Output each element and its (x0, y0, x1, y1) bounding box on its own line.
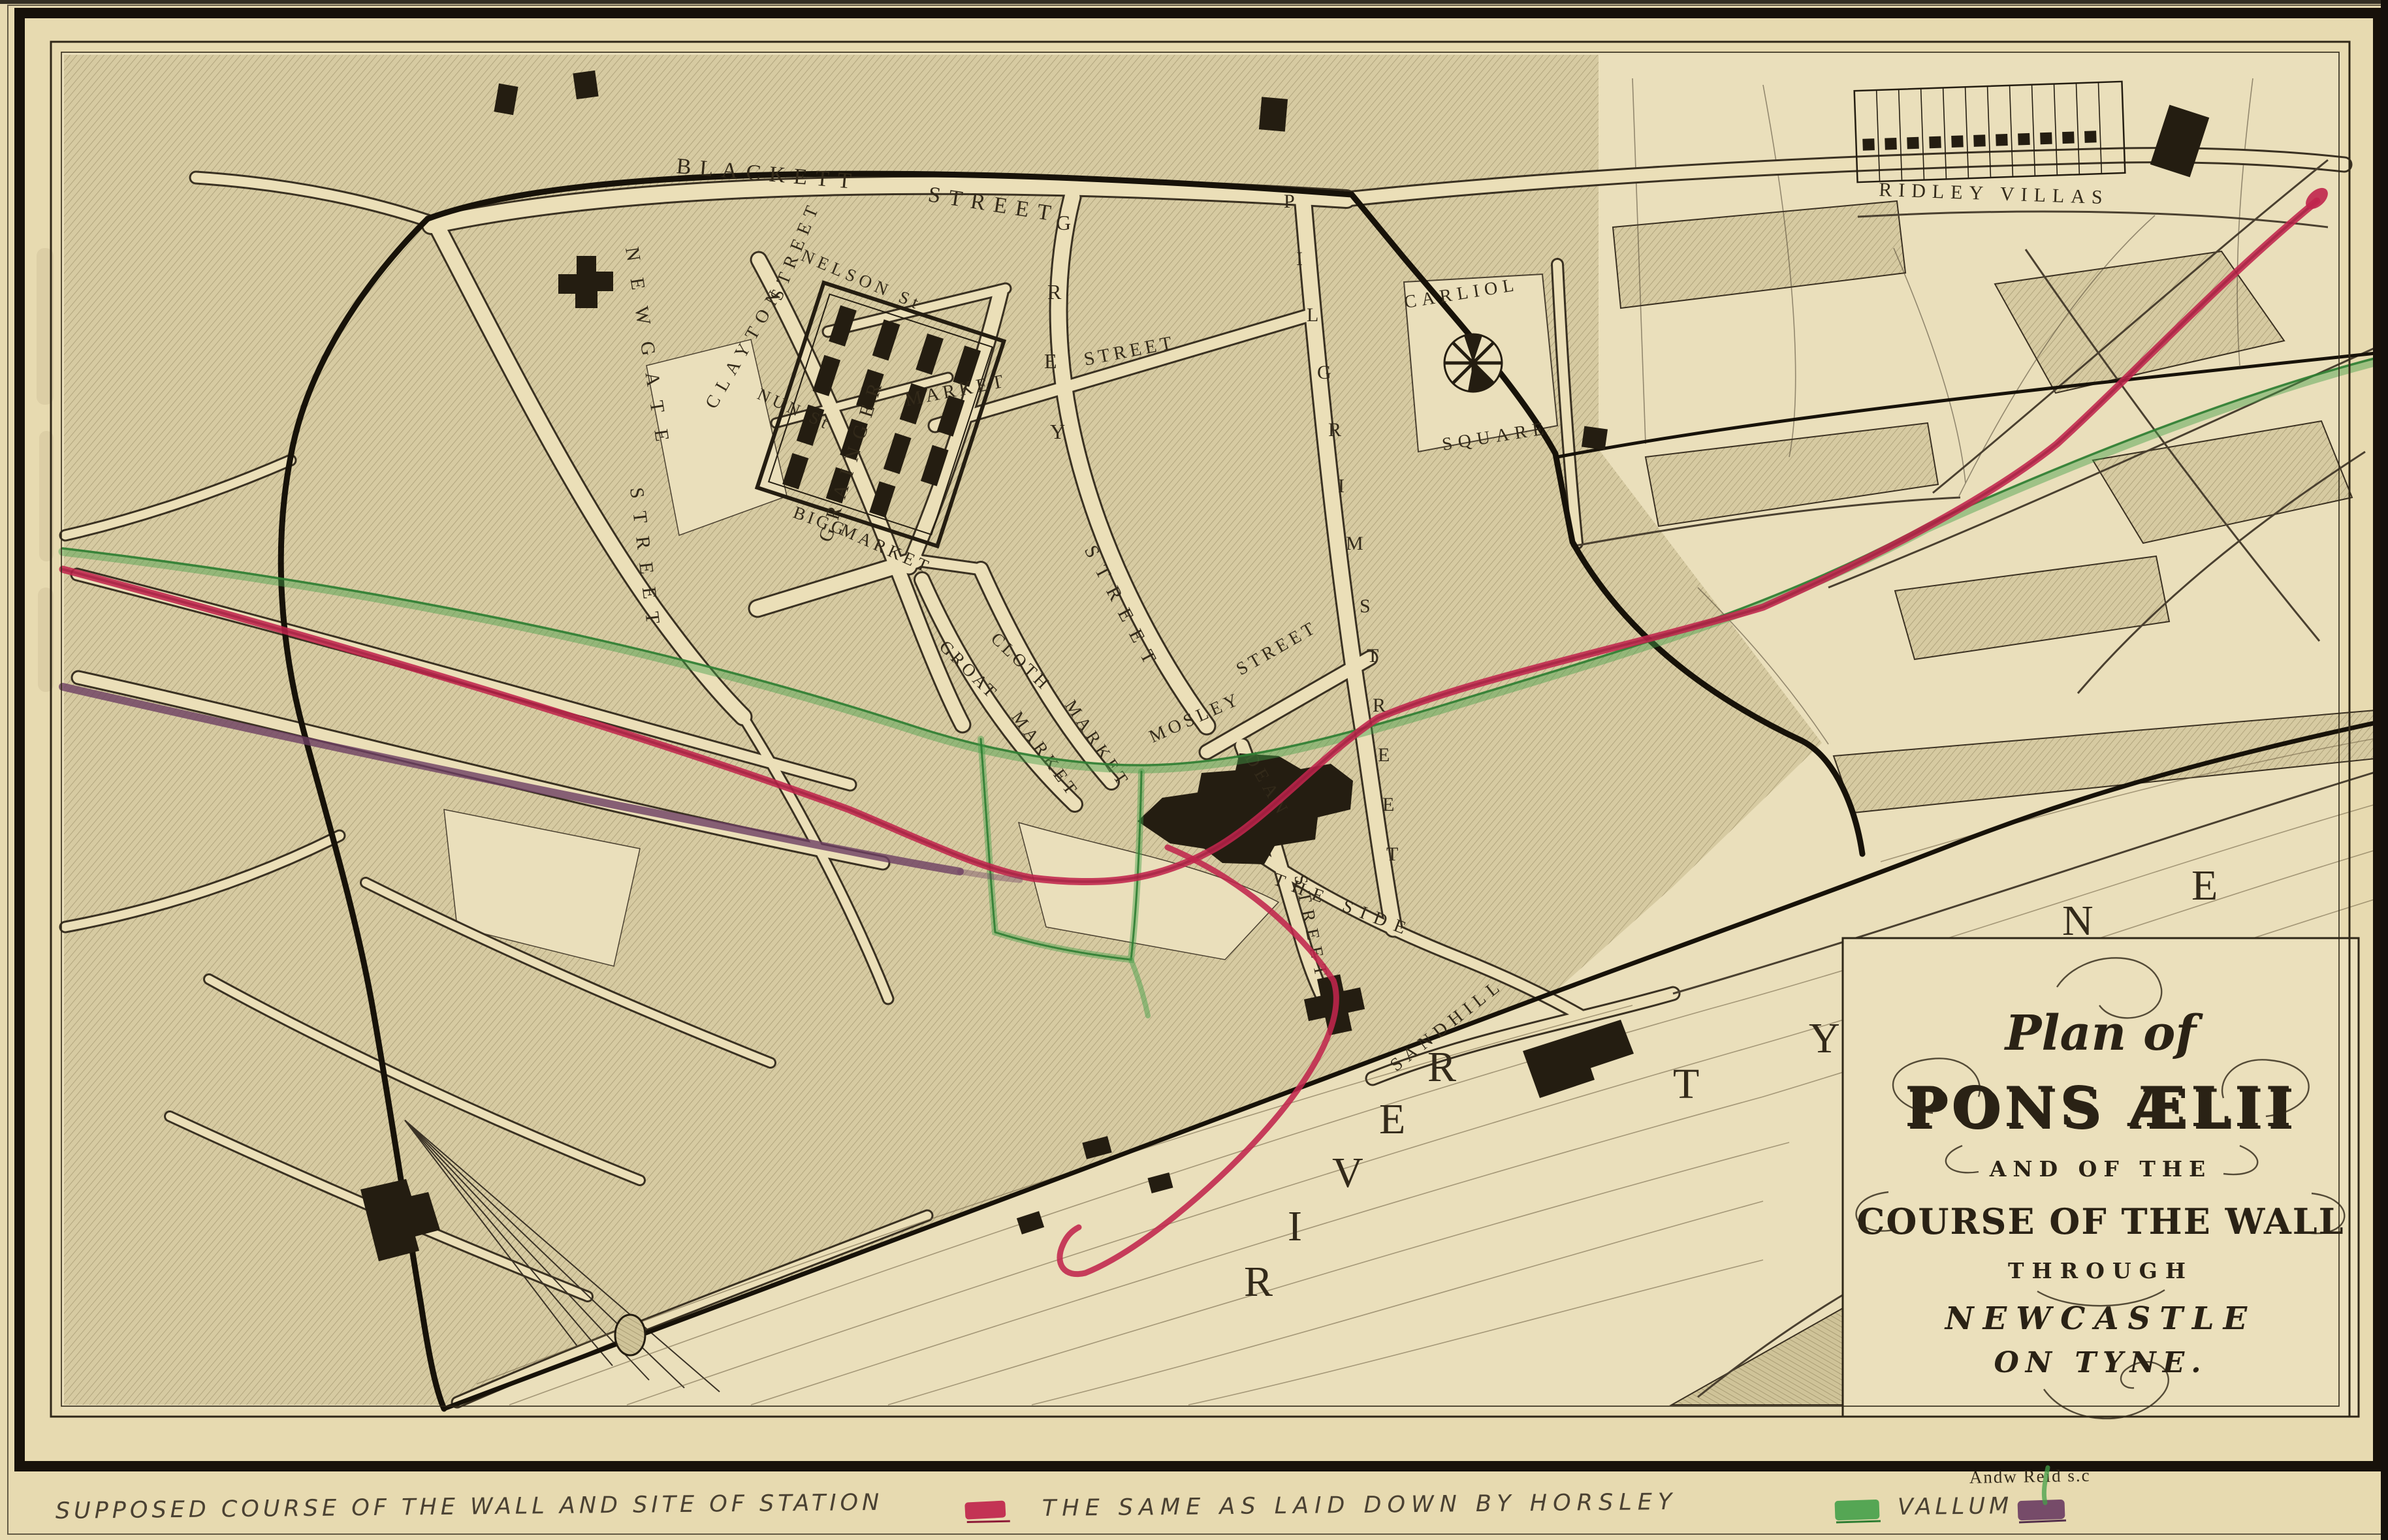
page-edge-right (2381, 0, 2388, 1540)
cartouche-plan-of: Plan of (2004, 1005, 2204, 1061)
cartouche-course-of-the-wall: COURSE OF THE WALL (1856, 1201, 2344, 1242)
cartouche-newcastle: NEWCASTLE (1944, 1300, 2257, 1337)
map-svg: BLACKETT STREET RIDLEY VILLAS NEWGATE ST… (0, 0, 2388, 1540)
engraver-credit: Andw Reid s.c (1969, 1466, 2091, 1487)
carliol-gaol (1444, 334, 1502, 392)
cartouche-pons-aelii: PONS ÆLII (1905, 1075, 2297, 1139)
title-cartouche: Plan of PONS ÆLII PONS ÆLII AND OF THE C… (1843, 938, 2359, 1419)
cartouche-on-tyne: ON TYNE. (1994, 1346, 2207, 1379)
page-edge-top (0, 0, 2388, 4)
legend-vallum-swatch (2017, 1500, 2066, 1522)
legend-vallum-label: VALLUM (1898, 1493, 2013, 1520)
legend-horsley-swatch (1834, 1500, 1881, 1522)
cartouche-through: THROUGH (2008, 1258, 2193, 1283)
cartouche-and-of-the: AND OF THE (1989, 1156, 2212, 1182)
